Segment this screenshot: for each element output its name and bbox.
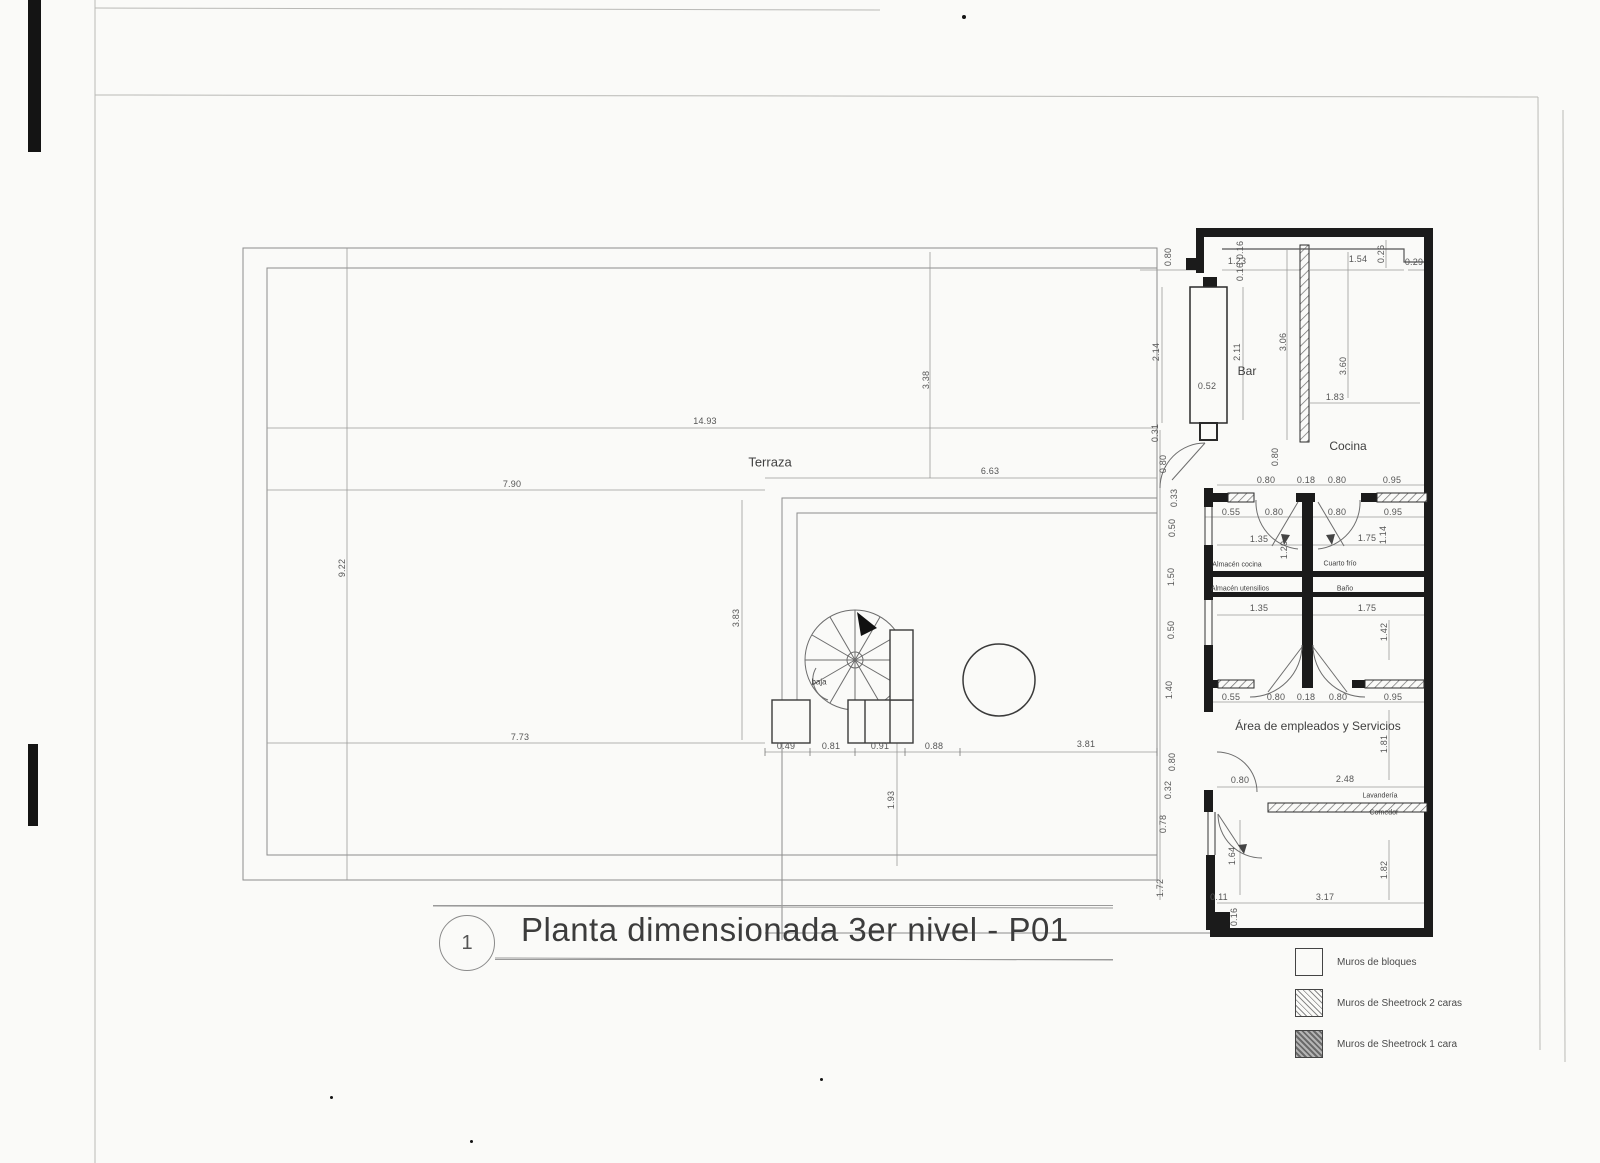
dimension-label: 1.75 <box>1358 603 1376 613</box>
dimension-label: 0.32 <box>1163 781 1173 799</box>
dimension-label: 6.63 <box>981 466 999 476</box>
dimension-label: 1.20 <box>1279 541 1289 559</box>
room-label: Comedor <box>1370 810 1399 817</box>
room-label: Almacén utensilios <box>1211 586 1269 593</box>
dimension-label: 3.83 <box>731 609 741 627</box>
dimension-label: 1.14 <box>1378 526 1388 544</box>
dimension-label: 1.54 <box>1349 254 1367 264</box>
dimension-label: 1.82 <box>1379 861 1389 879</box>
dimension-label: 0.88 <box>925 741 943 751</box>
legend-label: Muros de Sheetrock 1 cara <box>1337 1039 1457 1050</box>
dimension-label: 0.80 <box>1158 455 1168 473</box>
dimension-label: 0.95 <box>1384 507 1402 517</box>
dimension-label: 0.81 <box>822 741 840 751</box>
dimension-label: 0.50 <box>1166 621 1176 639</box>
dimension-label: 3.17 <box>1316 892 1334 902</box>
dimension-label: 1.72 <box>1155 879 1165 897</box>
dimension-label: 0.80 <box>1328 475 1346 485</box>
inner-wall-lines <box>1205 249 1424 855</box>
room-label: Almacén cocina <box>1212 562 1261 569</box>
dimension-label: 7.90 <box>503 479 521 489</box>
dimension-label: 0.31 <box>1150 424 1160 442</box>
legend-swatch-hatch2 <box>1295 989 1323 1017</box>
bar-counter <box>1190 287 1227 440</box>
dimension-label: 0.16 <box>1229 908 1239 926</box>
room-label: Área de empleados y Servicios <box>1235 719 1400 733</box>
room-label: Cuarto frío <box>1323 561 1356 568</box>
dimension-label: 0.80 <box>1163 248 1173 266</box>
dimension-label: 2.48 <box>1336 774 1354 784</box>
wall-legend: Muros de bloquesMuros de Sheetrock 2 car… <box>1295 948 1575 1071</box>
dimension-label: 7.73 <box>511 732 529 742</box>
legend-item: Muros de Sheetrock 2 caras <box>1295 989 1575 1017</box>
legend-swatch-solid <box>1295 948 1323 976</box>
title-block: 1 Planta dimensionada 3er nivel - P01 <box>433 893 1153 973</box>
dimension-label: 1.81 <box>1379 735 1389 753</box>
doors <box>1160 443 1365 858</box>
dimension-label: 1.35 <box>1250 534 1268 544</box>
dimension-label: 1.50 <box>1166 568 1176 586</box>
dimension-label: 0.80 <box>1265 507 1283 517</box>
room-label: Bar <box>1238 364 1257 378</box>
dimension-label: 0.80 <box>1328 507 1346 517</box>
legend-item: Muros de bloques <box>1295 948 1575 976</box>
dimension-label: 0.50 <box>1167 519 1177 537</box>
dimension-label: 0.91 <box>871 741 889 751</box>
dimension-label: 0.33 <box>1169 489 1179 507</box>
dimension-label: 0.80 <box>1257 475 1275 485</box>
dimension-label: 1.93 <box>886 791 896 809</box>
dimension-label: 14.93 <box>693 416 717 426</box>
title-rule-top <box>433 905 1113 906</box>
legend-label: Muros de bloques <box>1337 957 1417 968</box>
dimension-label: 0.78 <box>1158 815 1168 833</box>
round-column <box>963 644 1035 716</box>
drawing-sheet: 14.937.906.639.223.383.837.731.930.490.8… <box>0 0 1600 1163</box>
dimension-label: 0.80 <box>1270 448 1280 466</box>
room-label: baja <box>811 678 826 687</box>
dimension-label: 3.38 <box>921 371 931 389</box>
view-number-bubble: 1 <box>439 915 495 971</box>
dimension-label: 0.26 <box>1376 245 1386 263</box>
dimension-label: 0.29 <box>1405 257 1423 267</box>
dimension-label: 0.11 <box>1210 892 1228 902</box>
legend-swatch-hatch1 <box>1295 1030 1323 1058</box>
dimension-label: 0.18 <box>1297 475 1315 485</box>
dimension-label: 3.81 <box>1077 739 1095 749</box>
dimension-label: 3.60 <box>1338 357 1348 375</box>
dimension-label: 0.52 <box>1198 381 1216 391</box>
dimension-label: 0.55 <box>1222 692 1240 702</box>
sheet-title: Planta dimensionada 3er nivel - P01 <box>521 911 1069 949</box>
dimension-label: 2.11 <box>1232 343 1242 361</box>
dimension-label: 0.49 <box>777 741 795 751</box>
dimension-label: 3.06 <box>1278 333 1288 351</box>
room-label: Baño <box>1337 586 1353 593</box>
dimension-label: 0.55 <box>1222 507 1240 517</box>
dimension-label: 0.18 <box>1297 692 1315 702</box>
legend-label: Muros de Sheetrock 2 caras <box>1337 998 1462 1009</box>
dimension-label: 0.95 <box>1384 692 1402 702</box>
dimension-label: 1.64 <box>1227 847 1237 865</box>
title-rule-bottom <box>495 959 1113 960</box>
dimension-label: 0.16 <box>1235 263 1245 281</box>
dimension-label: 0.80 <box>1329 692 1347 702</box>
dimension-label: 0.95 <box>1383 475 1401 485</box>
dimension-label: 1.35 <box>1250 603 1268 613</box>
dimension-label: 1.40 <box>1164 681 1174 699</box>
dimension-label: 0.80 <box>1267 692 1285 702</box>
dimension-label: 1.75 <box>1358 533 1376 543</box>
room-label: Terraza <box>748 455 791 470</box>
view-number: 1 <box>461 932 472 955</box>
room-label: Cocina <box>1329 439 1366 453</box>
dimension-label: 2.14 <box>1151 343 1161 361</box>
dimension-label: 1.42 <box>1379 623 1389 641</box>
room-label: Lavandería <box>1362 793 1397 800</box>
dimension-label: 0.80 <box>1231 775 1249 785</box>
dimension-label: 9.22 <box>337 559 347 577</box>
legend-item: Muros de Sheetrock 1 cara <box>1295 1030 1575 1058</box>
dimension-label: 0.80 <box>1167 753 1177 771</box>
dimension-label: 0.16 <box>1235 241 1245 259</box>
stair-walls <box>772 630 913 743</box>
terrace-outline <box>243 248 1210 940</box>
dimension-label: 1.83 <box>1326 392 1344 402</box>
